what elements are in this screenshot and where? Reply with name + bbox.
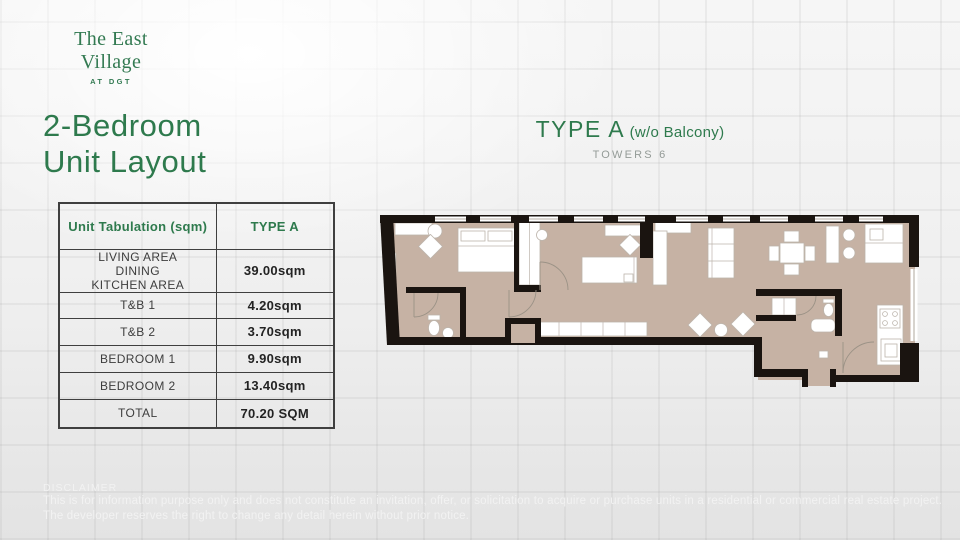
row-label: BEDROOM 2 <box>59 372 216 399</box>
stool <box>537 230 548 241</box>
row-label: T&B 1 <box>59 292 216 318</box>
brand-name: The East Village <box>46 28 176 74</box>
burner <box>893 321 898 326</box>
row-label: BEDROOM 1 <box>59 345 216 372</box>
window <box>859 217 883 222</box>
plan-qualifier: (w/o Balcony) <box>630 124 725 141</box>
dining-chair <box>784 264 799 275</box>
table-row: T&B 2 3.70sqm <box>59 318 334 345</box>
entry-stub-floor <box>808 369 830 386</box>
refrigerator <box>870 229 883 240</box>
bed-fold <box>624 274 633 282</box>
pillow <box>461 231 485 241</box>
bar-counter <box>826 226 839 263</box>
plan-header: TYPE A (w/o Balcony) TOWERS 6 <box>495 116 765 161</box>
row-value: 13.40sqm <box>216 372 334 399</box>
page-title: 2-Bedroom Unit Layout <box>43 108 206 180</box>
dining-chair <box>805 246 815 261</box>
header-unit-tabulation: Unit Tabulation (sqm) <box>59 203 216 249</box>
built-in-cabinet <box>537 322 647 336</box>
row-value: 3.70sqm <box>216 318 334 345</box>
toilet-tank <box>428 315 440 320</box>
row-value: 4.20sqm <box>216 292 334 318</box>
disclaimer-line2: The developer reserves the right to chan… <box>43 509 943 524</box>
floor-plan <box>378 205 923 390</box>
window <box>676 217 708 222</box>
sink-basin <box>885 344 897 357</box>
toilet-tank <box>823 299 834 303</box>
lavatory-sink <box>443 328 454 339</box>
brand-tagline: AT DGT <box>46 77 176 86</box>
window <box>435 217 466 222</box>
unit-tabulation-table: Unit Tabulation (sqm) TYPE A LIVING AREA… <box>58 202 335 429</box>
plan-title: TYPE A (w/o Balcony) <box>495 116 765 143</box>
bar-stool <box>843 229 855 241</box>
window <box>480 217 511 222</box>
dining-chair <box>769 246 779 261</box>
utility-box <box>819 351 828 358</box>
dresser <box>395 223 432 235</box>
row-label: TOTAL <box>59 399 216 428</box>
plan-type-label: TYPE A <box>536 116 626 142</box>
dining-chair <box>784 231 799 242</box>
table-row: LIVING AREA DINING KITCHEN AREA 39.00sqm <box>59 249 334 292</box>
burner <box>883 321 888 326</box>
row-value: 70.20 SQM <box>216 399 334 428</box>
window <box>815 217 843 222</box>
table-row: T&B 1 4.20sqm <box>59 292 334 318</box>
toilet <box>429 321 440 336</box>
window <box>574 217 603 222</box>
burner <box>893 312 898 317</box>
table-row: BEDROOM 1 9.90sqm <box>59 345 334 372</box>
brand-logo: The East Village AT DGT <box>46 28 176 86</box>
table-total-row: TOTAL 70.20 SQM <box>59 399 334 428</box>
page-title-line1: 2-Bedroom <box>43 108 206 144</box>
disclaimer-title: DISCLAIMER <box>43 482 943 494</box>
burner <box>883 312 888 317</box>
table-row: BEDROOM 2 13.40sqm <box>59 372 334 399</box>
disclaimer-line1: This is for information purpose only and… <box>43 494 943 509</box>
towers-label: TOWERS 6 <box>495 149 765 161</box>
row-value: 39.00sqm <box>216 249 334 292</box>
shelf <box>605 225 643 236</box>
row-label: T&B 2 <box>59 318 216 345</box>
stove <box>880 309 900 328</box>
toilet <box>824 304 834 317</box>
tv-cabinet <box>653 231 667 285</box>
page-title-line2: Unit Layout <box>43 144 206 180</box>
row-value: 9.90sqm <box>216 345 334 372</box>
window <box>529 217 558 222</box>
slide: The East Village AT DGT 2-Bedroom Unit L… <box>0 0 960 540</box>
floor-plan-svg <box>378 205 923 390</box>
window <box>723 217 750 222</box>
header-type-a: TYPE A <box>216 203 334 249</box>
dining-table <box>780 243 804 263</box>
pillow <box>488 231 512 241</box>
bathtub <box>811 319 835 332</box>
row-label: LIVING AREA DINING KITCHEN AREA <box>59 249 216 292</box>
table-header-row: Unit Tabulation (sqm) TYPE A <box>59 203 334 249</box>
window <box>618 217 645 222</box>
window <box>911 269 918 341</box>
bar-stool <box>843 247 855 259</box>
disclaimer: DISCLAIMER This is for information purpo… <box>43 482 943 523</box>
window <box>760 217 788 222</box>
coffee-table <box>715 324 728 337</box>
